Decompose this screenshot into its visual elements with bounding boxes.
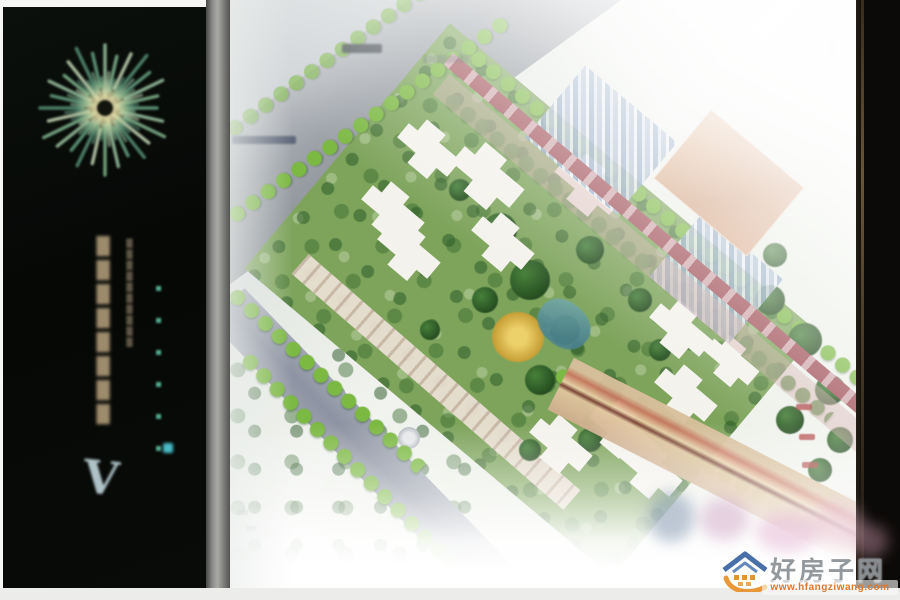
page-spine-edge xyxy=(206,0,230,588)
tree-canopy xyxy=(525,365,555,395)
annotation-red-illegible xyxy=(802,462,818,468)
tree-canopy xyxy=(576,236,604,264)
brochure-cover-panel: ████████ ██████████ ▪▪▪▪▪▪ V xyxy=(3,7,206,588)
vertical-tagline-secondary-illegible: ██████████ xyxy=(125,239,134,439)
watermark-blur-blob xyxy=(756,512,818,552)
road-label-illegible xyxy=(232,136,296,144)
starburst-svg xyxy=(25,25,185,195)
tree-canopy xyxy=(628,288,652,312)
tree-canopy xyxy=(472,287,498,313)
scanned-brochure-site-plan-photo: ████████ ██████████ ▪▪▪▪▪▪ V xyxy=(0,0,900,600)
annotation-red-illegible xyxy=(799,434,815,440)
watermark-blur-blob xyxy=(700,498,748,540)
watermark-url-bar: www.hfangziwang.com xyxy=(762,580,898,595)
strip-accent-line xyxy=(861,0,864,588)
annotation-dot-illegible xyxy=(238,510,248,515)
tree-canopy xyxy=(519,439,541,461)
watermark-url: www.hfangziwang.com xyxy=(770,582,889,593)
vertical-accent-marks-illegible: ▪▪▪▪▪▪ xyxy=(153,283,164,468)
corner-mark-illegible xyxy=(828,42,835,55)
teal-accent-dot xyxy=(163,443,173,453)
back-cover-dark-strip xyxy=(856,0,900,588)
tree-canopy xyxy=(510,260,550,300)
logotype-v-mark: V xyxy=(80,449,121,506)
starburst-dandelion-logo-icon xyxy=(25,25,185,195)
annotation-red-illegible xyxy=(796,404,812,410)
watermark-blur-blob xyxy=(648,492,694,542)
master-site-plan xyxy=(230,0,856,588)
vertical-tagline-illegible: ████████ xyxy=(93,237,113,442)
road-label-illegible xyxy=(423,55,469,63)
tree-canopy xyxy=(763,243,787,267)
annotation-dot-illegible xyxy=(246,526,256,531)
road-label-illegible xyxy=(342,44,382,53)
tree-canopy xyxy=(420,320,440,340)
tree-canopy xyxy=(776,406,804,434)
